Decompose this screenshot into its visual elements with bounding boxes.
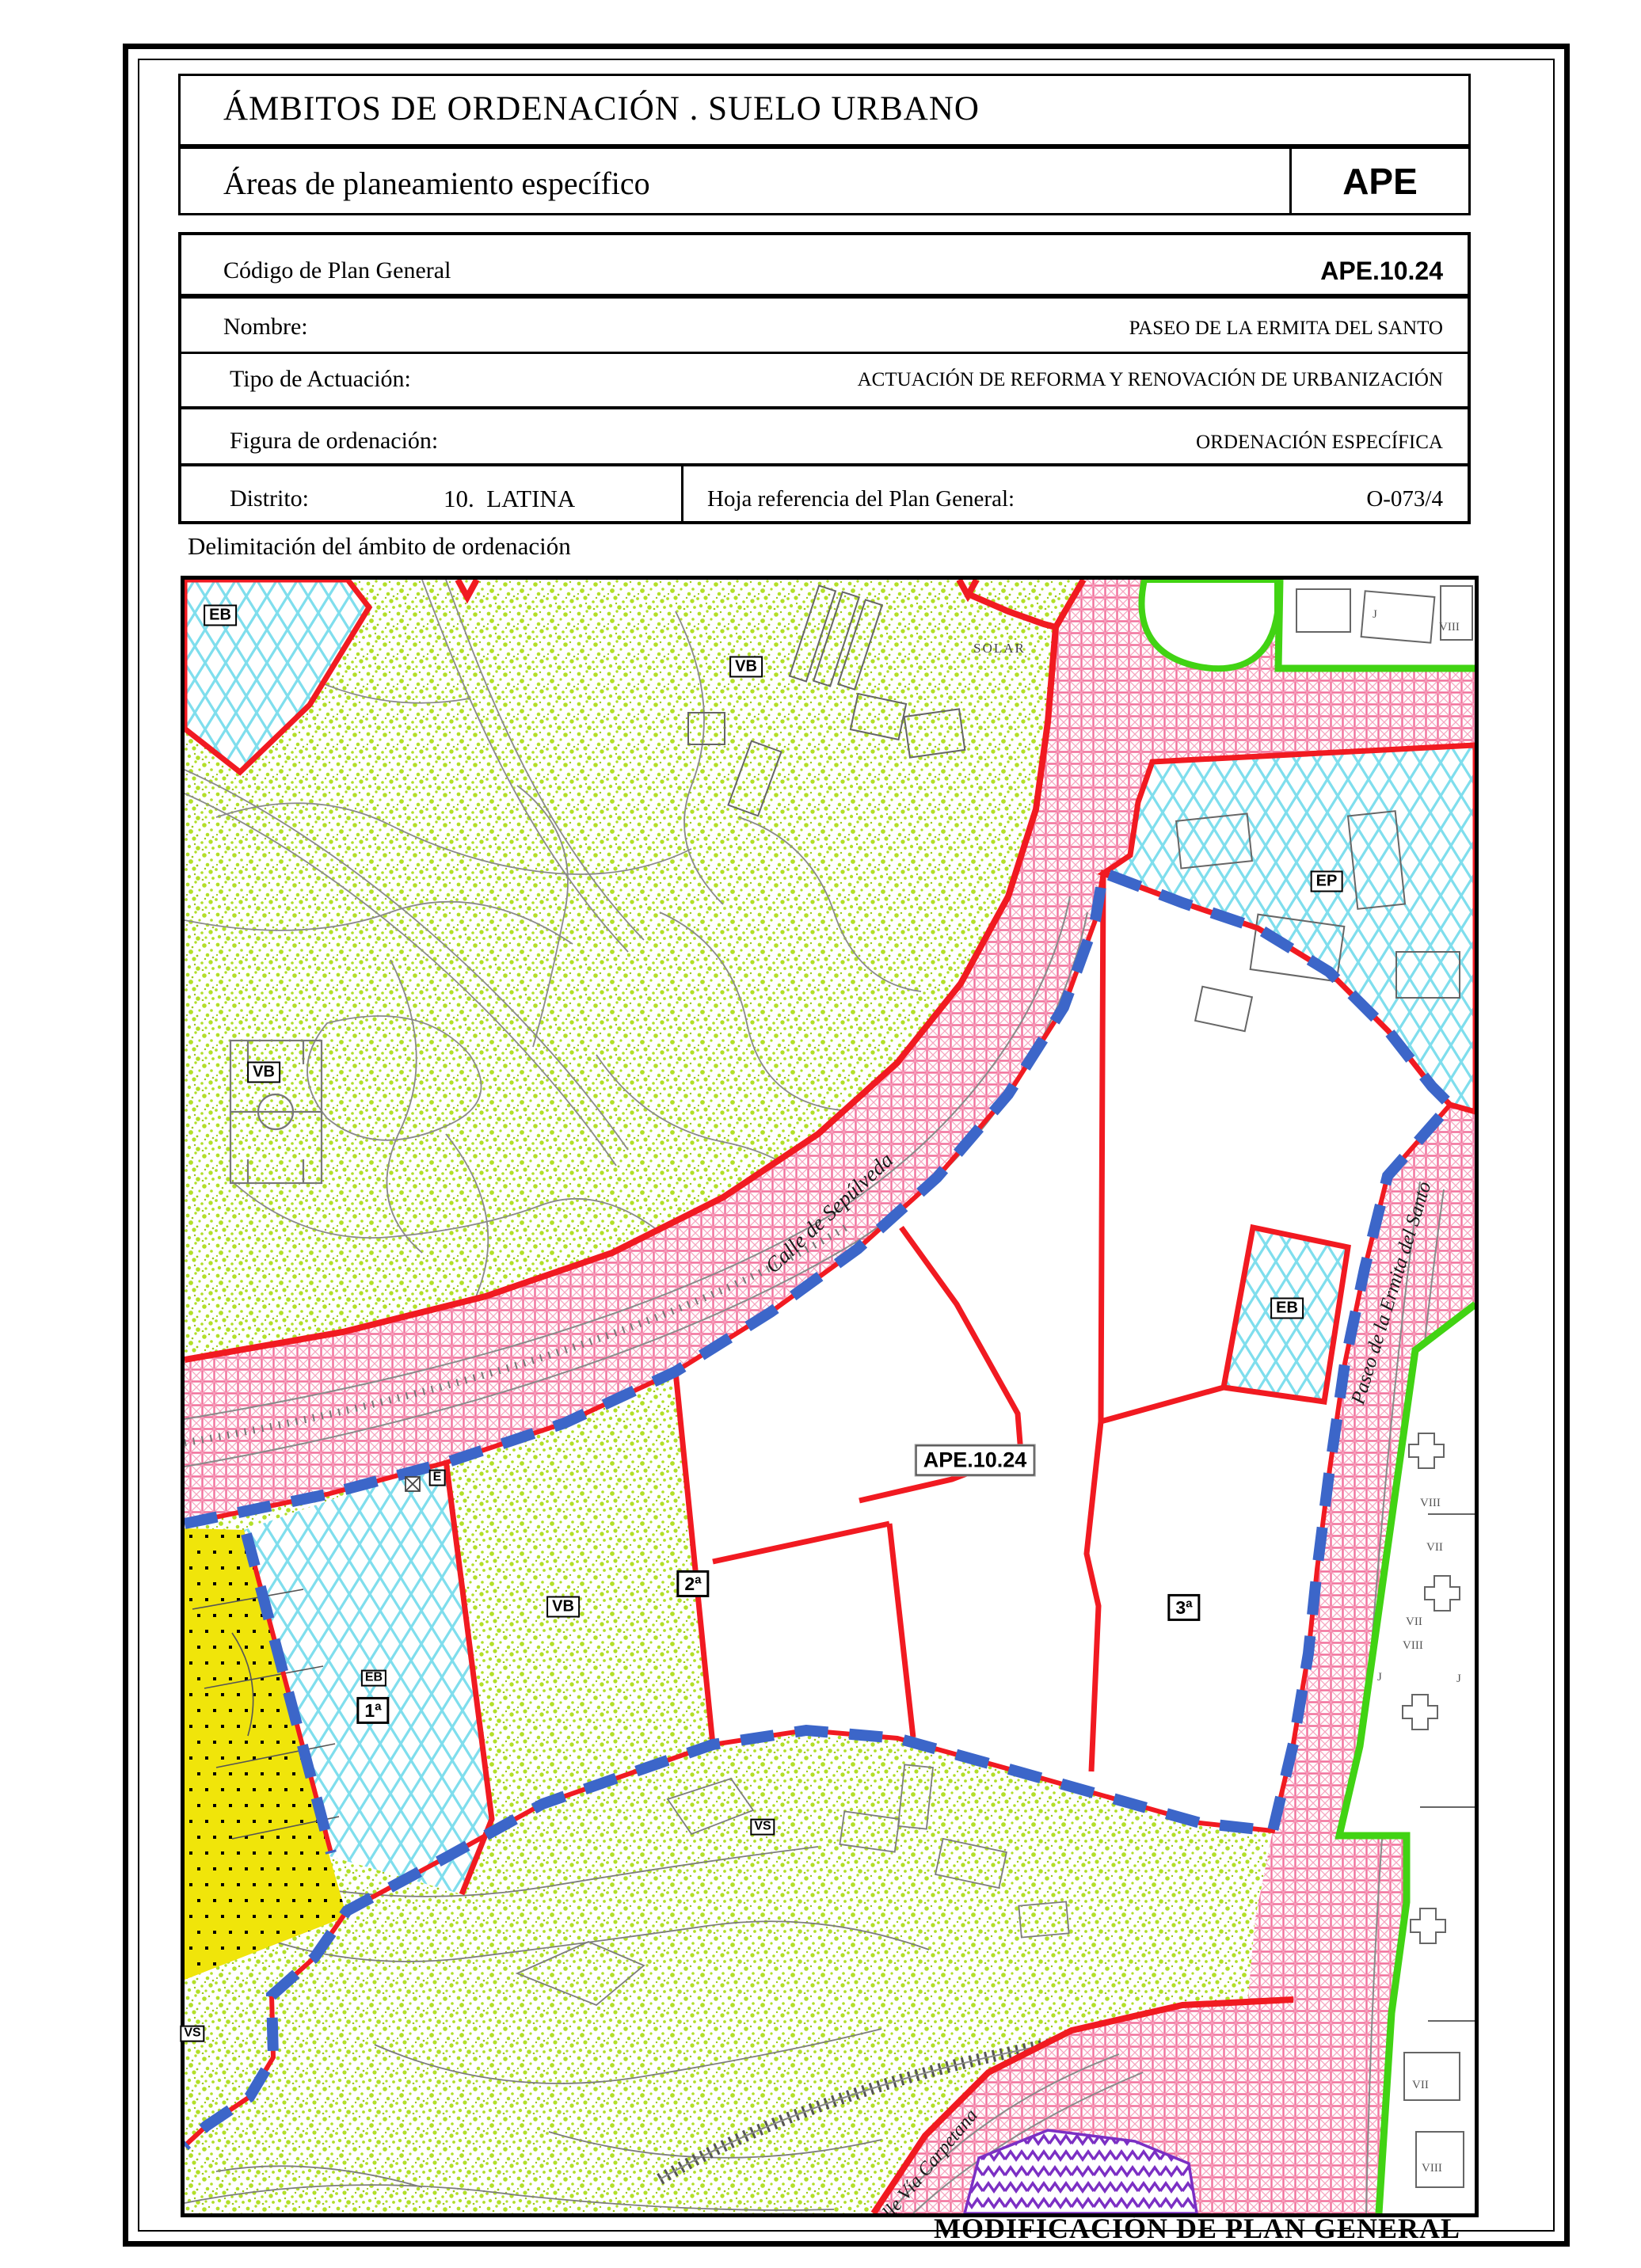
building-label: VIII: [1422, 2162, 1442, 2175]
zone-label-vb-mid: VB: [546, 1596, 580, 1618]
zone-label-eb-topleft: EB: [204, 605, 237, 626]
building-label: VII: [1412, 2079, 1429, 2091]
map-frame: Calle de Sepúlveda Paseo de la Ermita de…: [181, 576, 1479, 2217]
building-label: VIII: [1403, 1639, 1423, 1652]
zone-label-ep: EP: [1311, 871, 1343, 892]
table-rule-1: [178, 294, 1471, 299]
ape-badge: APE: [1289, 147, 1471, 215]
solar-label: SOLAR: [973, 641, 1026, 656]
zone-label-vs-south: VS: [750, 1819, 775, 1836]
zone-label-vb-north: VB: [729, 656, 763, 678]
building-label: J: [1456, 1672, 1461, 1685]
distrito-divider: [681, 466, 683, 524]
building-label: VIII: [1439, 621, 1460, 634]
codigo-value: APE.10.24: [1320, 257, 1443, 286]
figura-label: Figura de ordenación:: [230, 428, 438, 455]
distrito-value: 10. LATINA: [444, 485, 575, 513]
zone-label-parcel-3: 3ª: [1167, 1594, 1200, 1621]
sheet-subtitle: Áreas de planeamiento específico: [223, 165, 650, 202]
ape-area-label: APE.10.24: [916, 1445, 1035, 1476]
zone-label-eb-square: EB: [1270, 1298, 1304, 1319]
zone-label-parcel-1: 1ª: [356, 1697, 389, 1724]
codigo-label: Código de Plan General: [223, 257, 451, 284]
sheet-title: ÁMBITOS DE ORDENACIÓN . SUELO URBANO: [223, 89, 980, 128]
building-label: VII: [1426, 1541, 1443, 1554]
zone-label-vb-west: VB: [247, 1062, 280, 1083]
map-canvas: Calle de Sepúlveda Paseo de la Ermita de…: [185, 580, 1475, 2213]
building-label: VII: [1406, 1615, 1422, 1628]
tipo-label: Tipo de Actuación:: [230, 366, 411, 393]
footer-title: MODIFICACIÓN DE PLAN GENERAL: [934, 2212, 1460, 2245]
hoja-value: O-073/4: [1366, 486, 1443, 512]
table-rule-2: [178, 352, 1471, 354]
zone-label-eb-1a: EB: [361, 1670, 386, 1687]
table-rule-4: [178, 463, 1471, 466]
nombre-label: Nombre:: [223, 314, 308, 341]
building-label: J: [1373, 608, 1377, 621]
building-label: J: [1377, 1671, 1382, 1684]
e-junction-marker: [405, 1477, 420, 1491]
planning-sheet: ÁMBITOS DE ORDENACIÓN . SUELO URBANO Áre…: [0, 0, 1641, 2268]
zone-label-vs-west: VS: [180, 2026, 204, 2042]
nombre-value: PASEO DE LA ERMITA DEL SANTO: [1129, 318, 1443, 340]
zone-label-e: E: [429, 1470, 446, 1486]
map-caption: Delimitación del ámbito de ordenación: [188, 532, 571, 561]
distrito-label: Distrito:: [230, 485, 309, 512]
zone-label-parcel-2: 2ª: [676, 1570, 709, 1597]
tipo-value: ACTUACIÓN DE REFORMA Y RENOVACIÓN DE URB…: [858, 369, 1443, 391]
table-rule-3: [178, 406, 1471, 409]
figura-value: ORDENACIÓN ESPECÍFICA: [1196, 432, 1443, 454]
hoja-label: Hoja referencia del Plan General:: [707, 486, 1015, 512]
building-label: VIII: [1420, 1497, 1441, 1509]
